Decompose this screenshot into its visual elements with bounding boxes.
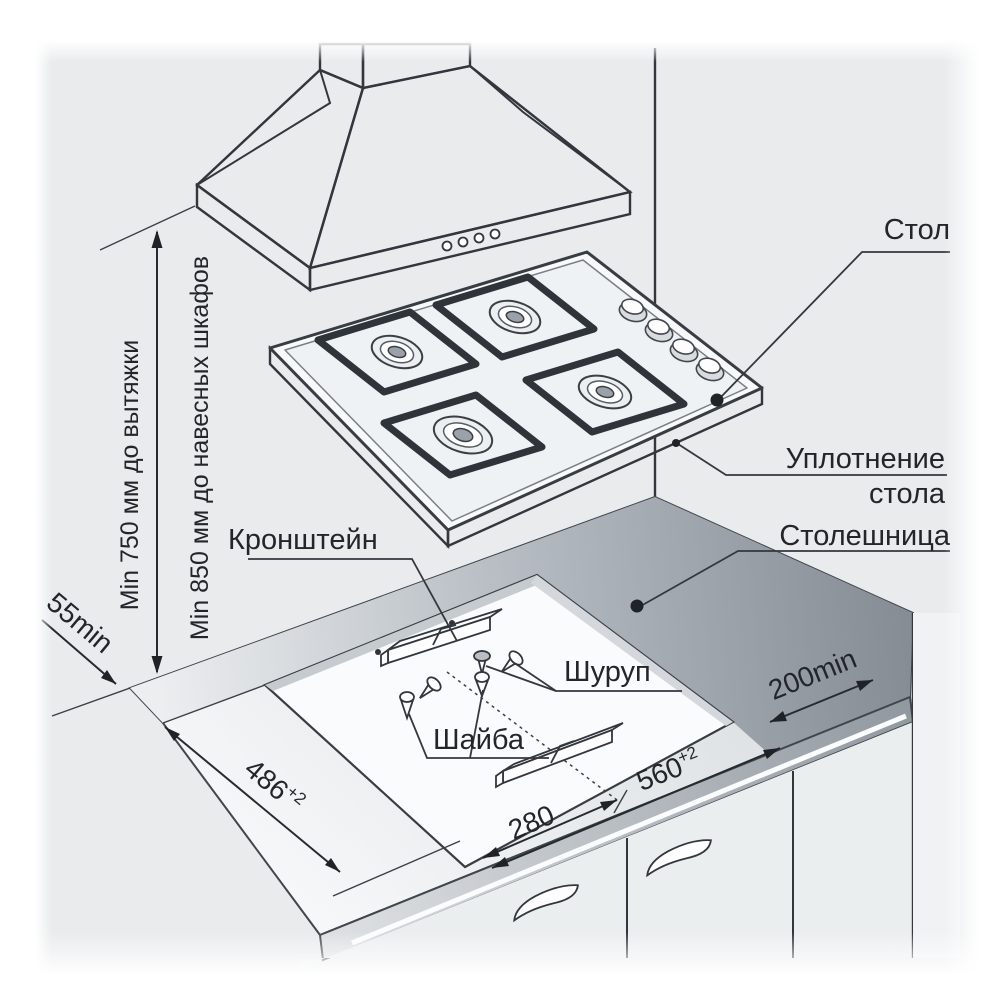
label-worktop: Столешница (779, 520, 951, 552)
top-fade (0, 0, 1000, 62)
installation-diagram: Стол Уплотнение стола Столешница Кронште… (0, 0, 1000, 1000)
callout-dot-seal (672, 439, 680, 447)
label-seal-line1: Уплотнение (786, 443, 945, 475)
fixing-point (375, 649, 381, 655)
bottom-border (0, 974, 1000, 1000)
bottom-fade (0, 932, 1000, 976)
diagram-canvas: Стол Уплотнение стола Столешница Кронште… (0, 0, 1000, 1000)
left-fade (0, 0, 52, 1000)
callout-dot-worktop (631, 600, 644, 613)
dim-label-cabinet-clearance: Min 850 мм до навесных шкафов (186, 256, 214, 640)
label-seal-line2: стола (869, 478, 946, 510)
dim-label-hood-clearance: Min 750 мм до вытяжки (116, 340, 144, 611)
label-screw: Шуруп (564, 656, 651, 688)
right-fade (944, 0, 1000, 1000)
label-bracket: Кронштейн (228, 524, 378, 556)
label-table: Стол (884, 214, 950, 246)
label-washer: Шайба (433, 724, 525, 756)
callout-dot-table (711, 394, 724, 407)
